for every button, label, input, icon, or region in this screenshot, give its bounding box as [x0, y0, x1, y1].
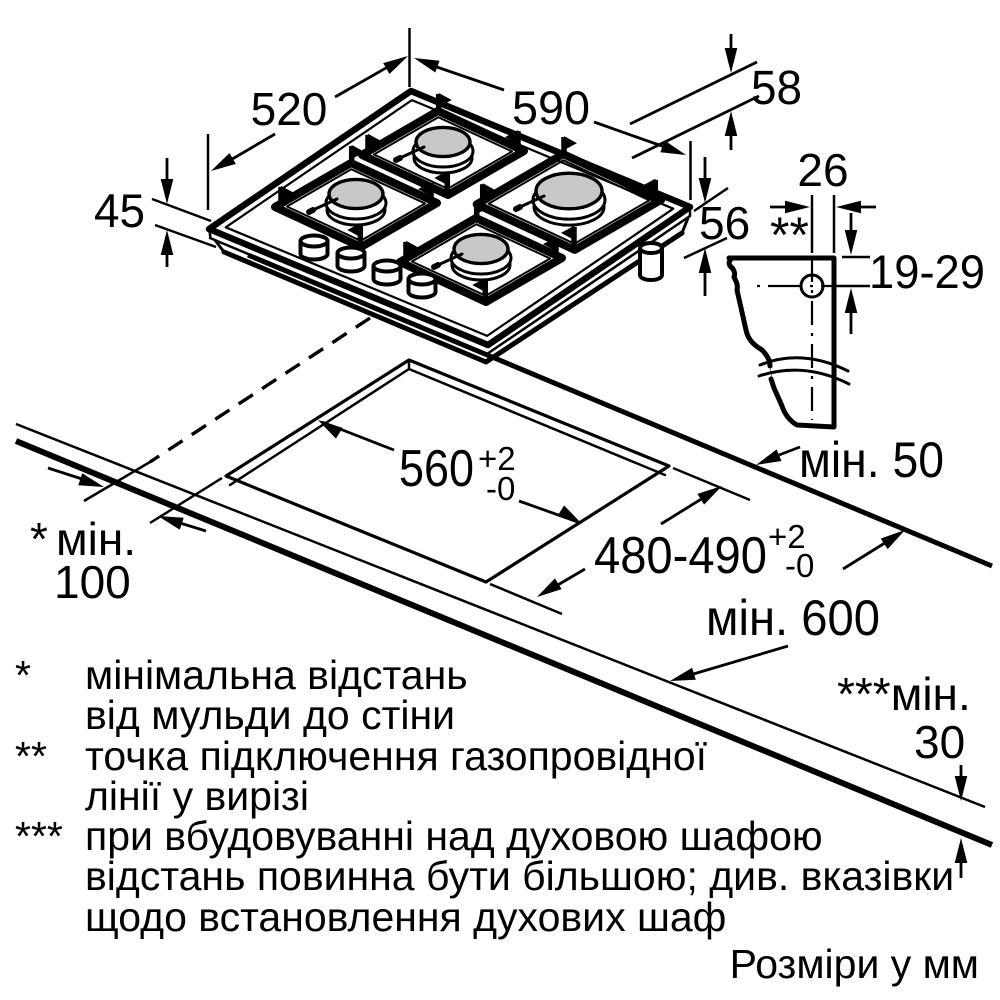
- svg-text:мін. 600: мін. 600: [706, 590, 880, 646]
- svg-text:45: 45: [94, 184, 145, 237]
- svg-text:19-29: 19-29: [869, 245, 985, 298]
- svg-text:100: 100: [54, 556, 131, 608]
- svg-text:480-490: 480-490: [594, 527, 767, 585]
- svg-text:30: 30: [914, 716, 965, 768]
- svg-text:**: **: [15, 733, 47, 779]
- svg-text:590: 590: [512, 81, 590, 134]
- svg-text:***мін.: ***мін.: [837, 668, 971, 720]
- svg-text:56: 56: [699, 197, 750, 249]
- svg-text:Розміри у мм: Розміри у мм: [730, 941, 979, 987]
- svg-text:58: 58: [751, 62, 802, 115]
- svg-text:відстань повинна бути більшою;: відстань повинна бути більшою; див. вказ…: [85, 853, 954, 899]
- svg-text:-0: -0: [785, 547, 814, 584]
- svg-text:щодо встановлення духових шаф: щодо встановлення духових шаф: [85, 894, 726, 940]
- svg-text:26: 26: [797, 144, 848, 196]
- svg-text:від мульди до стіни: від мульди до стіни: [85, 692, 455, 738]
- svg-text:**: **: [770, 207, 809, 263]
- svg-text:*: *: [15, 652, 31, 698]
- svg-text:520: 520: [251, 83, 328, 135]
- svg-text:мін. 50: мін. 50: [799, 432, 944, 488]
- svg-text:*: *: [30, 513, 48, 565]
- svg-text:560: 560: [399, 440, 474, 498]
- svg-text:-0: -0: [486, 470, 515, 507]
- svg-text:***: ***: [15, 813, 63, 859]
